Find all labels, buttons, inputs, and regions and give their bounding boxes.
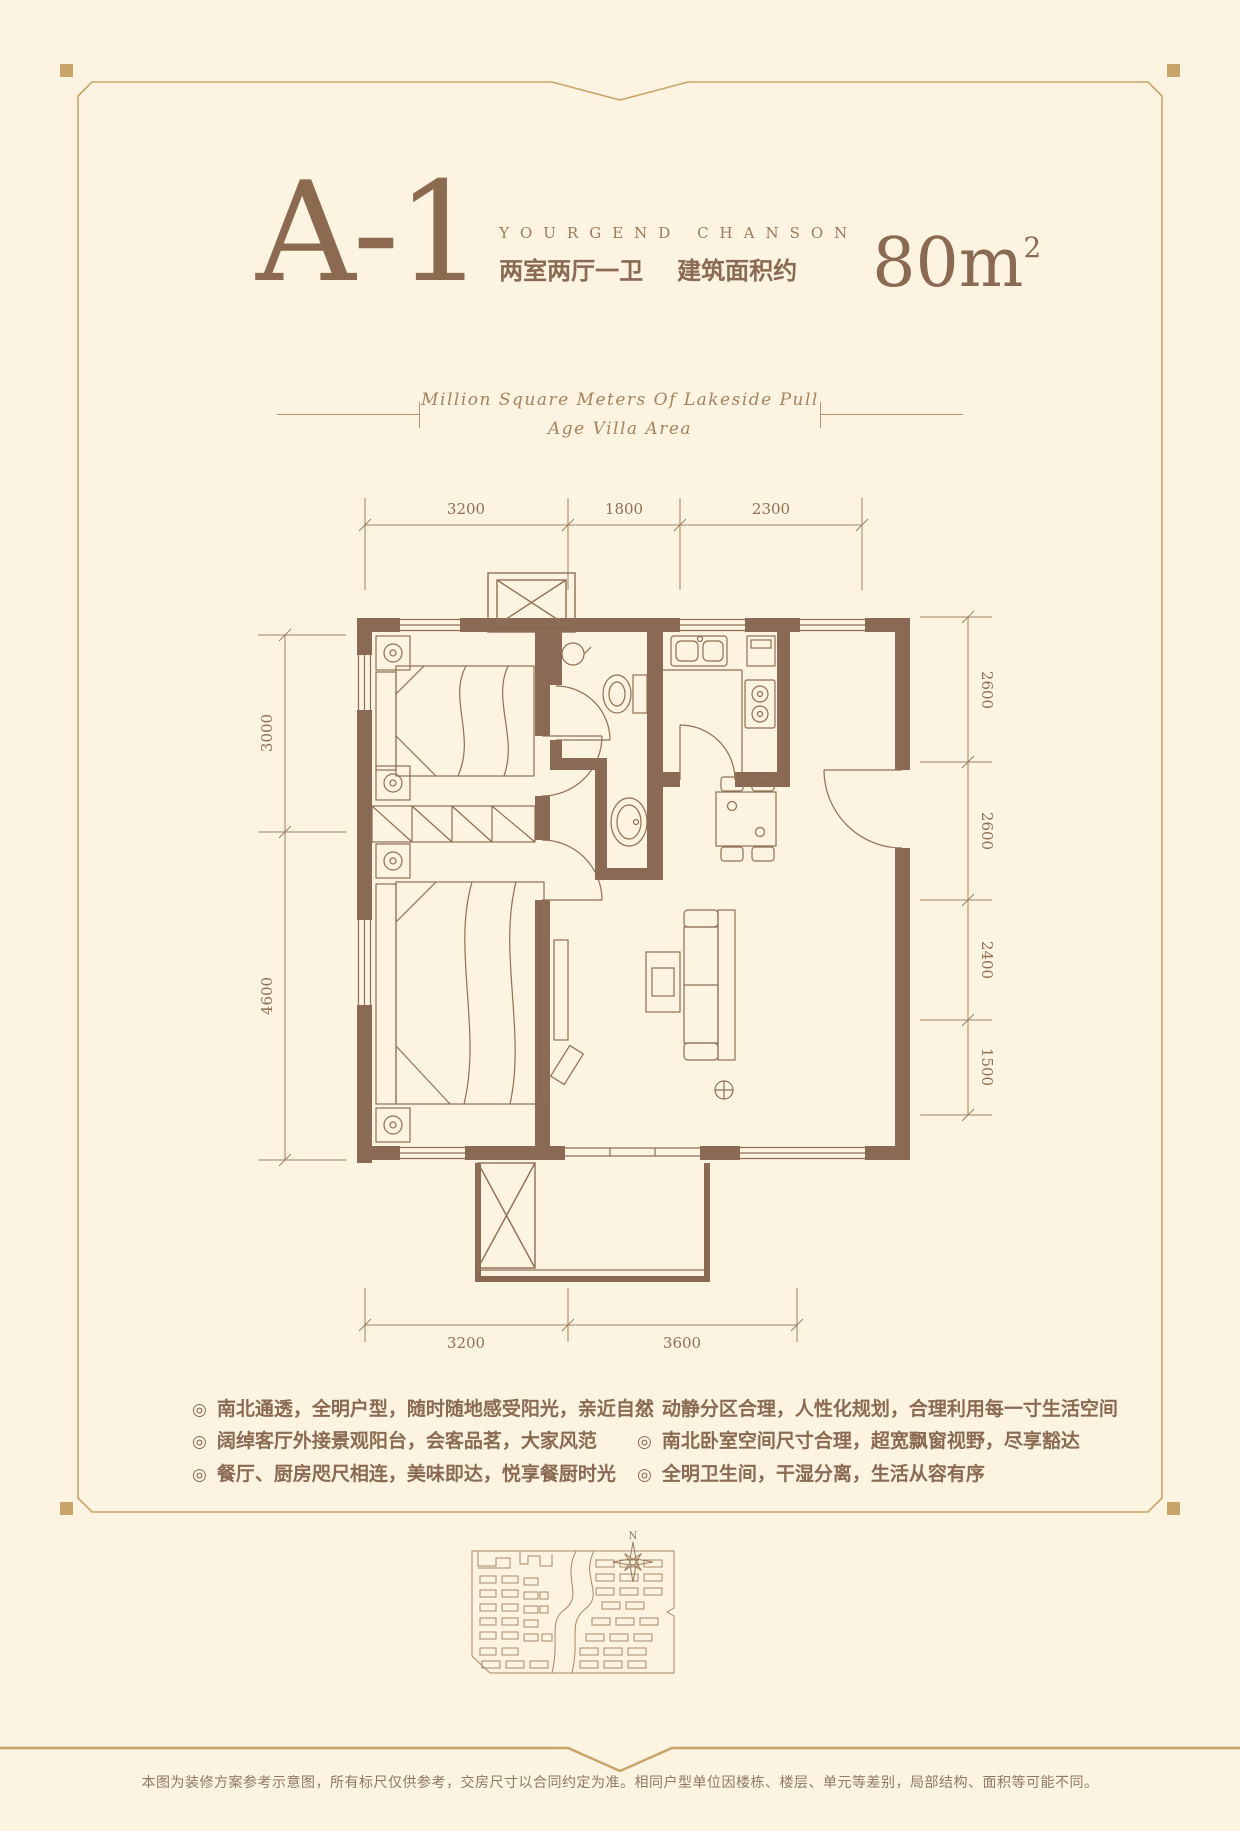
feature-item: ◎ 全明卫生间，干湿分离，生活从容有序 [637,1465,1118,1485]
kitchen-door-arc [680,725,735,780]
north-label: N [629,1531,638,1542]
feature-item: ◎ 动静分区合理，人性化规划，合理利用每一寸生活空间 [637,1400,1118,1420]
bathroom-door-arc [556,686,610,740]
corner-square-top-left [60,64,73,77]
dim-label-right-2: 2400 [978,941,996,979]
fixtures [372,636,776,1142]
dim-label-bottom-0: 3200 [447,1334,485,1352]
layout-text: 两室两厅一卫 [499,256,643,285]
bottom-chevron-rule [0,1748,1240,1771]
floor-lamp-icon [715,1081,733,1099]
header: A-1 YOURGEND CHANSON 两室两厅一卫建筑面积约 80m2 [256,176,1041,289]
feature-item: ◎ 南北通透，全明户型，随时随地感受阳光，亲近自然 [192,1400,654,1420]
area-value: 80m2 [872,240,1041,289]
walls [357,618,910,1282]
bullet-icon: ◎ [637,1400,652,1420]
layout-line: 两室两厅一卫建筑面积约 [499,251,858,286]
bullet-icon: ◎ [637,1432,652,1452]
tagline-line1: Million Square Meters Of Lakeside Pull [420,386,820,415]
bullet-icon: ◎ [192,1465,207,1485]
dim-label-right-0: 2600 [978,671,996,709]
feature-text: 全明卫生间，干湿分离，生活从容有序 [662,1465,985,1485]
feature-item: ◎ 南北卧室空间尺寸合理，超宽飘窗视野，尽享豁达 [637,1432,1118,1452]
bullet-icon: ◎ [192,1432,207,1452]
unit-code: A-1 [256,176,481,289]
tagline-rule-left [277,414,419,415]
footer-disclaimer: 本图为装修方案参考示意图，所有标尺仅供参考，交房尺寸以合同约定为准。相同户型单位… [0,1772,1240,1792]
dim-label-top-2: 2300 [752,500,790,518]
feature-item: ◎ 阔绰客厅外接景观阳台，会客品茗，大家风范 [192,1432,654,1452]
compass-icon: N [611,1528,655,1586]
poster-canvas: A-1 YOURGEND CHANSON 两室两厅一卫建筑面积约 80m2 Mi… [0,0,1240,1831]
area-superscript: 2 [1023,231,1041,264]
features-left: ◎ 南北通透，全明户型，随时随地感受阳光，亲近自然 ◎ 阔绰客厅外接景观阳台，会… [192,1400,654,1497]
dim-label-left-0: 3000 [258,714,276,752]
fridge-icon [747,636,775,666]
tagline-text: Million Square Meters Of Lakeside Pull A… [420,386,820,444]
dim-label-left-1: 4600 [258,977,276,1015]
coffee-table-icon [646,952,680,1012]
washbasin-icon [611,798,647,846]
toilet-icon [603,675,647,713]
floor-plan: 3200 1800 2300 3000 4600 2600 2600 2400 … [220,440,1030,1360]
subtitle-en: YOURGEND CHANSON [499,224,858,242]
features-right: ◎ 动静分区合理，人性化规划，合理利用每一寸生活空间 ◎ 南北卧室空间尺寸合理，… [637,1400,1118,1497]
header-mid: YOURGEND CHANSON 两室两厅一卫建筑面积约 [499,224,858,286]
dim-label-top-1: 1800 [605,500,643,518]
sofa-icon [684,910,735,1060]
dim-label-top-0: 3200 [447,500,485,518]
feature-text: 餐厅、厨房咫尺相连，美味即达，悦享餐厨时光 [217,1465,616,1485]
dining-table-icon [716,777,776,861]
bullet-icon: ◎ [192,1400,207,1420]
bedroom2-door-arc [542,840,602,900]
corner-square-bottom-left [60,1502,73,1515]
tagline: Million Square Meters Of Lakeside Pull A… [0,386,1240,444]
bed-2-icon [376,882,544,1104]
entry-door-arc [824,770,902,848]
wardrobe-icon [372,806,535,842]
nightstand-icon [376,844,410,1142]
bullet-icon: ◎ [637,1465,652,1485]
area-label: 建筑面积约 [677,256,797,285]
feature-text: 动静分区合理，人性化规划，合理利用每一寸生活空间 [662,1400,1118,1420]
tv-cabinet-icon [551,940,584,1085]
dim-label-right-3: 1500 [978,1048,996,1086]
bed-1-icon [376,666,534,776]
stair-shaft [478,1163,535,1268]
feature-text: 南北卧室空间尺寸合理，超宽飘窗视野，尽享豁达 [662,1432,1080,1452]
feature-text: 南北通透，全明户型，随时随地感受阳光，亲近自然 [217,1400,654,1420]
dim-label-bottom-1: 3600 [663,1334,701,1352]
kitchen-sink-icon [671,636,727,666]
bath-sink-icon [562,643,591,665]
tagline-rule-right [821,414,963,415]
stove-icon [745,680,775,728]
corner-square-bottom-right [1167,1502,1180,1515]
feature-item: ◎ 餐厅、厨房咫尺相连，美味即达，悦享餐厨时光 [192,1465,654,1485]
corner-square-top-right [1167,64,1180,77]
dim-label-right-1: 2600 [978,812,996,850]
feature-text: 阔绰客厅外接景观阳台，会客品茗，大家风范 [217,1432,597,1452]
